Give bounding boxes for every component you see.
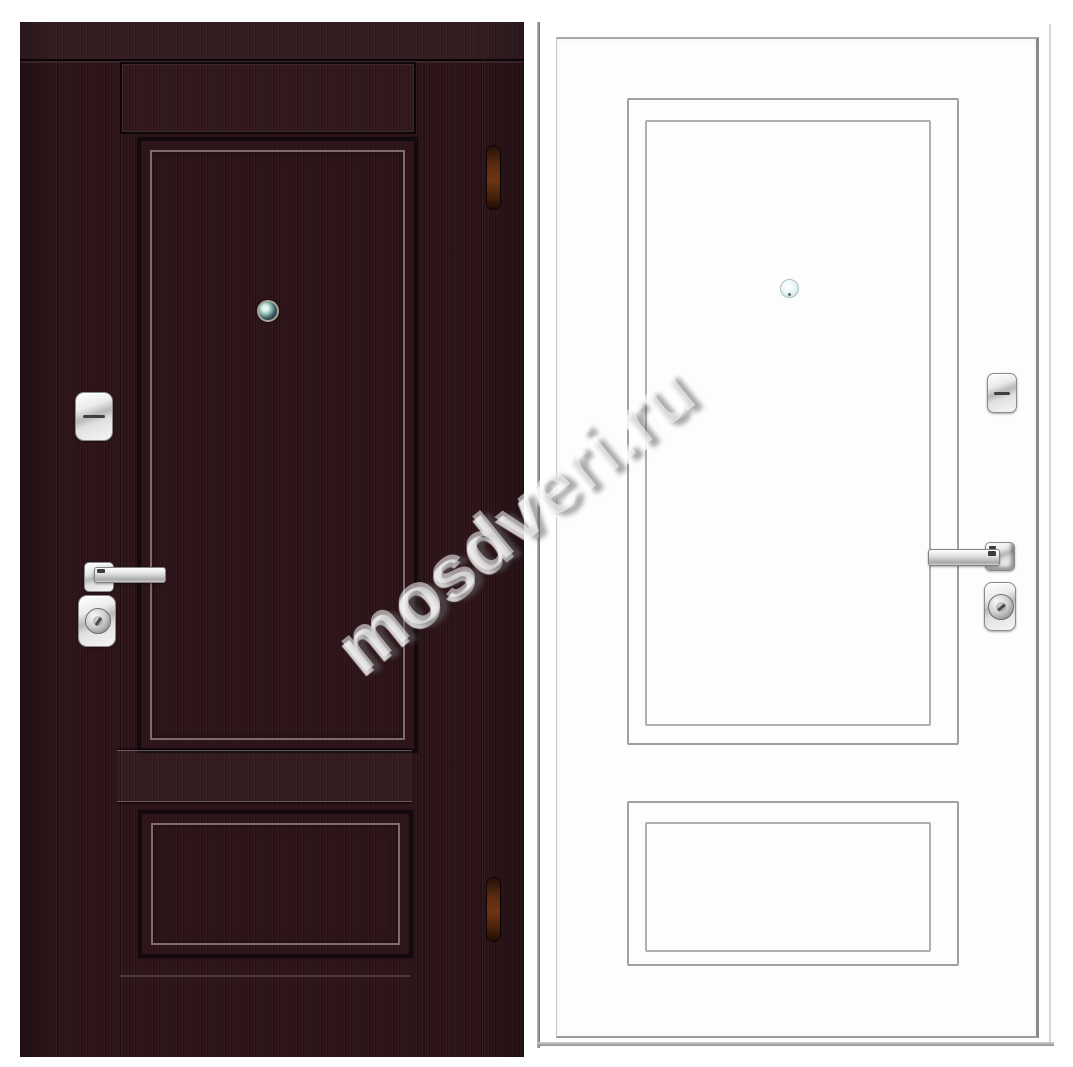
keyhole-escutcheon	[75, 392, 113, 441]
peephole-mark	[788, 293, 791, 296]
lower-panel-molding	[627, 801, 959, 966]
lower-panel-inner-molding	[151, 823, 400, 945]
door-hinge-top	[486, 145, 501, 210]
top-rail-panel	[120, 62, 416, 134]
lower-panel-inner-molding	[645, 822, 931, 952]
cylinder-keyhole	[85, 608, 111, 634]
peephole	[257, 300, 279, 322]
wood-seam	[58, 59, 60, 1057]
keyhole-slot	[83, 415, 105, 418]
door-handle-lever	[928, 549, 1000, 566]
door-back-side-white	[524, 0, 1073, 1067]
cylinder-escutcheon	[78, 595, 116, 647]
cylinder-escutcheon	[984, 582, 1016, 631]
door-bottom-shadow	[537, 1042, 1054, 1046]
bottom-rail-line	[120, 975, 410, 977]
door-top-cap	[20, 22, 524, 61]
door-edge-right	[1049, 24, 1051, 1044]
door-hinge-bottom	[486, 877, 501, 942]
handle-notch	[988, 551, 996, 556]
cylinder-keyhole	[988, 594, 1014, 620]
keyhole-escutcheon	[987, 373, 1017, 413]
keyhole-slot	[994, 392, 1010, 395]
door-handle-lever	[94, 567, 166, 583]
lower-panel-molding	[138, 810, 413, 958]
handle-notch	[97, 569, 105, 573]
door-catalog-photo: mosdveri.ru	[0, 0, 1073, 1067]
middle-rail	[117, 750, 412, 802]
wood-seam	[120, 59, 122, 1057]
peephole	[780, 279, 799, 298]
